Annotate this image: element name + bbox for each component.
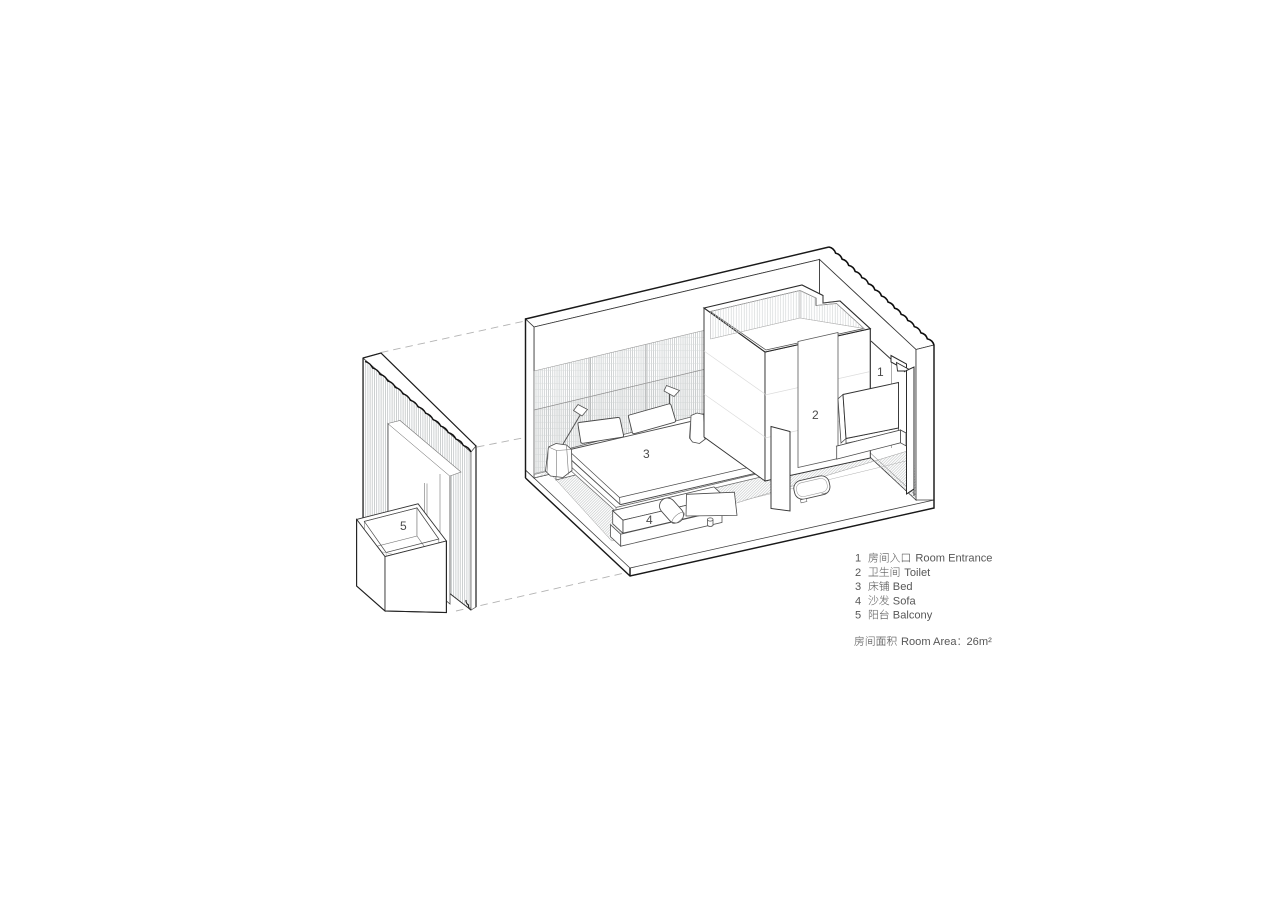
svg-text:Sofa: Sofa [893,595,917,607]
svg-text:Room Area: Room Area [901,636,957,648]
svg-text:1: 1 [855,553,861,565]
svg-text:Toilet: Toilet [904,567,930,579]
svg-text:2: 2 [812,408,819,422]
svg-text:Room Entrance: Room Entrance [915,553,992,565]
svg-text:Bed: Bed [893,581,913,593]
svg-text:4: 4 [646,513,653,527]
svg-text:3: 3 [643,447,650,461]
svg-text:5: 5 [400,519,407,533]
svg-text:3: 3 [855,581,861,593]
svg-text:26m²: 26m² [967,636,993,648]
svg-text:5: 5 [855,610,861,622]
svg-text:2: 2 [855,567,861,579]
svg-text:4: 4 [855,595,861,607]
svg-text:1: 1 [877,365,884,379]
svg-text:Balcony: Balcony [893,610,933,622]
